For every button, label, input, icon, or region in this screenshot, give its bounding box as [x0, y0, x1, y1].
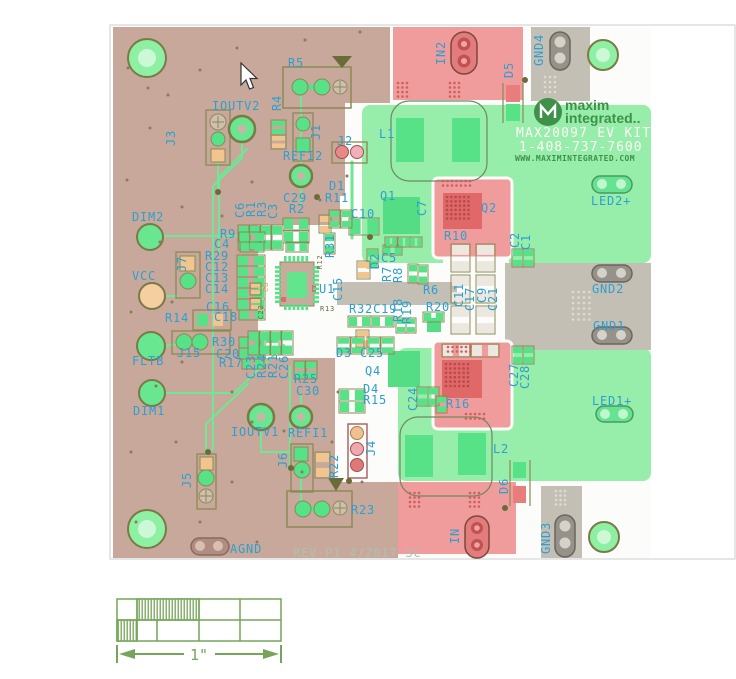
thermal-dot — [478, 417, 481, 420]
thermal-dot — [450, 196, 453, 199]
thermal-dot — [453, 82, 456, 85]
thermal-dot — [409, 496, 412, 499]
thermal-dot — [458, 385, 461, 388]
thermal-dot — [467, 380, 470, 383]
thermal-dot — [418, 496, 421, 499]
thermal-dot — [456, 346, 459, 349]
u1-pin — [275, 275, 281, 278]
thermal-dot — [406, 91, 409, 94]
thermal-dot — [463, 204, 466, 207]
thermal-dot — [445, 385, 448, 388]
thermal-dot — [544, 76, 547, 79]
thermal-dot — [401, 91, 404, 94]
thermal-dot — [465, 350, 468, 353]
thermal-dot — [459, 196, 462, 199]
thermal-dot — [445, 367, 448, 370]
label-C25: C25 — [360, 346, 384, 360]
thermal-dot — [469, 496, 472, 499]
thermal-dot — [474, 417, 477, 420]
label-D6: D6 — [497, 478, 511, 494]
via-dot — [251, 181, 254, 184]
label-C30: C30 — [296, 384, 320, 398]
thermal-dot — [450, 209, 453, 212]
thermal-dot — [467, 372, 470, 375]
label-IOUTV1: IOUTV1 — [231, 425, 279, 439]
label-D3: D3 — [336, 346, 352, 360]
via-dot — [301, 471, 304, 474]
thermal-dot — [454, 204, 457, 207]
thermal-dot — [450, 217, 453, 220]
u1-pin — [306, 304, 309, 310]
thermal-dot — [450, 204, 453, 207]
thermal-dot — [469, 492, 472, 495]
thermal-dot — [455, 180, 458, 183]
thermal-dot — [467, 367, 470, 370]
thermal-dot — [460, 180, 463, 183]
label-R8: R8 — [391, 267, 405, 283]
thermal-dot — [549, 91, 552, 94]
thermal-dot — [397, 86, 400, 89]
thermal-dot — [462, 372, 465, 375]
connector-in — [465, 516, 489, 558]
label-C24: C24 — [406, 387, 420, 411]
thermal-dot — [449, 363, 452, 366]
thermal-dot — [446, 180, 449, 183]
thermal-dot — [463, 213, 466, 216]
u1-pin — [288, 304, 291, 310]
label-VCC: VCC — [132, 269, 156, 283]
thermal-dot — [458, 380, 461, 383]
label-C14: C14 — [205, 282, 229, 296]
thermal-dot — [445, 372, 448, 375]
connector-in2 — [451, 32, 477, 74]
label-C8: C8 — [262, 282, 270, 292]
fet-q4 — [388, 351, 420, 387]
thermal-dot — [413, 505, 416, 508]
thermal-dot — [456, 350, 459, 353]
connector-gnd2 — [592, 265, 632, 282]
thermal-dot — [458, 91, 461, 94]
thermal-dot — [459, 204, 462, 207]
via-dot — [319, 199, 322, 202]
label-R11: R11 — [325, 191, 349, 205]
thermal-dot — [450, 213, 453, 216]
thermal-dot — [469, 505, 472, 508]
thermal-dot — [555, 494, 558, 497]
via-dot — [304, 39, 307, 42]
thermal-dot — [467, 209, 470, 212]
via-dot — [175, 441, 178, 444]
via-dot — [283, 430, 286, 433]
thermal-dot — [474, 413, 477, 416]
thermal-dot — [454, 372, 457, 375]
label-C5: C5 — [381, 251, 397, 265]
label-R19: R19 — [400, 300, 414, 324]
thermal-dot — [577, 318, 580, 321]
label-REFI1: REFI1 — [288, 426, 328, 440]
thermal-dot — [446, 184, 449, 187]
via-dot — [522, 77, 528, 83]
label-Q4: Q4 — [365, 364, 381, 378]
label-L1: L1 — [379, 127, 395, 141]
thermal-dot — [453, 91, 456, 94]
label-R14: R14 — [165, 311, 189, 325]
thermal-dot — [460, 350, 463, 353]
pad-dim2 — [137, 224, 163, 250]
u1-pin — [313, 275, 319, 278]
via-dot — [231, 391, 234, 394]
pad-refi1 — [290, 406, 312, 428]
thermal-dot — [588, 313, 591, 316]
label-IN2: IN2 — [434, 41, 448, 65]
thermal-dot — [462, 376, 465, 379]
pad-vcc — [139, 283, 165, 309]
thermal-dot — [564, 490, 567, 493]
via-dot — [171, 301, 174, 304]
thermal-dot — [454, 209, 457, 212]
thermal-dot — [458, 376, 461, 379]
via-dot — [231, 481, 234, 484]
thermal-dot — [583, 302, 586, 305]
thermal-dot — [467, 200, 470, 203]
thermal-dot — [583, 318, 586, 321]
fet-q3 — [442, 360, 482, 398]
thermal-dot — [564, 494, 567, 497]
label-C15: C15 — [331, 277, 345, 301]
thermal-dot — [554, 86, 557, 89]
u1-pin — [288, 256, 291, 262]
fet-q2 — [443, 193, 482, 229]
label-R23: R23 — [351, 503, 375, 517]
u1-pin — [275, 292, 281, 295]
thermal-dot — [588, 318, 591, 321]
thermal-dot — [572, 318, 575, 321]
via-dot — [181, 206, 184, 209]
u1-pin — [275, 266, 281, 269]
u1-pin — [313, 296, 319, 299]
thermal-dot — [449, 82, 452, 85]
thermal-dot — [449, 91, 452, 94]
via-dot — [199, 521, 202, 524]
thermal-dot — [467, 376, 470, 379]
thermal-dot — [397, 95, 400, 98]
thermal-dot — [483, 417, 486, 420]
u1-pin — [293, 304, 296, 310]
thermal-dot — [554, 76, 557, 79]
thermal-dot — [469, 413, 472, 416]
via-dot — [236, 47, 239, 50]
thermal-dot — [454, 385, 457, 388]
label-R13: R13 — [320, 305, 335, 313]
thermal-dot — [559, 490, 562, 493]
label-R4: R4 — [270, 95, 284, 111]
thermal-dot — [572, 296, 575, 299]
thermal-dot — [446, 213, 449, 216]
thermal-dot — [462, 363, 465, 366]
thermal-dot — [447, 346, 450, 349]
connector-agnd — [191, 538, 229, 555]
via-dot — [130, 311, 133, 314]
thermal-dot — [473, 505, 476, 508]
u1-pin — [297, 256, 300, 262]
label-REFI2: REFI2 — [283, 149, 323, 163]
thermal-dot — [458, 82, 461, 85]
thermal-dot — [458, 86, 461, 89]
label-R2: R2 — [289, 202, 305, 216]
thermal-dot — [397, 91, 400, 94]
thermal-dot — [572, 302, 575, 305]
thermal-dot — [406, 82, 409, 85]
via-dot — [159, 241, 162, 244]
thermal-dot — [583, 307, 586, 310]
thermal-dot — [564, 503, 567, 506]
thermal-dot — [588, 291, 591, 294]
label-GND4: GND4 — [532, 34, 546, 66]
label-R6: R6 — [423, 283, 439, 297]
ic-u1 — [280, 262, 316, 306]
thermal-dot — [572, 291, 575, 294]
pad-ioutv2 — [229, 116, 255, 142]
thermal-dot — [458, 95, 461, 98]
thermal-dot — [559, 494, 562, 497]
label-C26: C26 — [277, 355, 291, 379]
thermal-dot — [462, 367, 465, 370]
label-C28: C28 — [518, 365, 532, 389]
label-J15: J15 — [177, 346, 201, 360]
thermal-dot — [465, 346, 468, 349]
via-dot — [331, 441, 334, 444]
thermal-dot — [473, 496, 476, 499]
thermal-dot — [577, 302, 580, 305]
via-dot — [221, 215, 224, 218]
thermal-dot — [478, 505, 481, 508]
label-C21: C21 — [486, 287, 500, 311]
thermal-dot — [462, 385, 465, 388]
via-dot — [359, 31, 362, 34]
label-DIM1: DIM1 — [133, 404, 165, 418]
thermal-dot — [449, 372, 452, 375]
label-J7: J7 — [175, 256, 189, 272]
label-R12: R12 — [316, 254, 324, 269]
thermal-dot — [449, 380, 452, 383]
label-C18: C18 — [214, 310, 238, 324]
thermal-dot — [406, 95, 409, 98]
u1-pin — [313, 270, 319, 273]
thermal-dot — [451, 350, 454, 353]
thermal-dot — [473, 501, 476, 504]
thermal-dot — [406, 86, 409, 89]
thermal-dot — [409, 501, 412, 504]
u1-pin — [284, 256, 287, 262]
u1-pin — [275, 283, 281, 286]
scale-label: 1" — [190, 646, 208, 664]
via-dot — [502, 505, 508, 511]
thermal-dot — [397, 82, 400, 85]
thermal-dot — [459, 200, 462, 203]
via-dot — [127, 67, 130, 70]
thermal-dot — [588, 296, 591, 299]
label-LED1+: LED1+ — [592, 394, 632, 408]
thermal-dot — [459, 209, 462, 212]
via-dot — [130, 451, 133, 454]
via-dot — [135, 521, 138, 524]
thermal-dot — [459, 213, 462, 216]
thermal-dot — [446, 196, 449, 199]
via-dot — [155, 385, 158, 388]
thermal-dot — [467, 204, 470, 207]
thermal-dot — [446, 209, 449, 212]
u1-pin — [297, 304, 300, 310]
thermal-dot — [572, 313, 575, 316]
thermal-dot — [454, 196, 457, 199]
thermal-dot — [555, 490, 558, 493]
via-dot — [181, 361, 184, 364]
thermal-dot — [465, 413, 468, 416]
via-dot — [291, 181, 294, 184]
u1-pin — [301, 256, 304, 262]
thermal-dot — [459, 217, 462, 220]
thermal-dot — [454, 217, 457, 220]
website-text: WWW.MAXIMINTEGRATED.COM — [515, 154, 635, 163]
thermal-dot — [463, 196, 466, 199]
label-J2: J2 — [337, 134, 353, 148]
thermal-dot — [449, 86, 452, 89]
thermal-dot — [478, 492, 481, 495]
u1-pin — [275, 288, 281, 291]
via-dot — [167, 94, 170, 97]
thermal-dot — [446, 204, 449, 207]
u1-pin — [301, 304, 304, 310]
thermal-dot — [463, 217, 466, 220]
thermal-dot — [549, 86, 552, 89]
label-C7: C7 — [415, 200, 429, 216]
label-R5: R5 — [288, 56, 304, 70]
pcb-layout-screenshot: { "branding": { "kit_name": "MAX20097 EV… — [0, 0, 736, 679]
label-Q1: Q1 — [380, 189, 396, 203]
label-J3: J3 — [164, 130, 178, 146]
thermal-dot — [445, 363, 448, 366]
thermal-dot — [469, 180, 472, 183]
thermal-dot — [544, 86, 547, 89]
thermal-dot — [453, 95, 456, 98]
via-dot — [149, 127, 152, 130]
thermal-dot — [418, 492, 421, 495]
via-dot — [205, 449, 211, 455]
connector-gnd3 — [555, 515, 575, 557]
thermal-dot — [445, 376, 448, 379]
label-R16: R16 — [446, 397, 470, 411]
scale-bar: 1" — [117, 599, 281, 664]
thermal-dot — [454, 363, 457, 366]
scale-bar-hatch-bottom — [117, 620, 137, 641]
thermal-dot — [418, 501, 421, 504]
via-dot — [361, 481, 364, 484]
thermal-dot — [458, 363, 461, 366]
via-dot — [346, 175, 349, 178]
thermal-dot — [401, 82, 404, 85]
thermal-dot — [463, 200, 466, 203]
label-IOUTV2: IOUTV2 — [212, 99, 260, 113]
thermal-dot — [401, 86, 404, 89]
thermal-dot — [483, 413, 486, 416]
thermal-dot — [401, 95, 404, 98]
thermal-dot — [449, 385, 452, 388]
thermal-dot — [413, 501, 416, 504]
label-C10: C10 — [351, 207, 375, 221]
thermal-dot — [449, 95, 452, 98]
via-dot — [367, 234, 373, 240]
thermal-dot — [449, 367, 452, 370]
via-dot — [346, 478, 352, 484]
thermal-dot — [462, 380, 465, 383]
thermal-dot — [454, 200, 457, 203]
thermal-dot — [409, 505, 412, 508]
thermal-dot — [564, 499, 567, 502]
label-AGND: AGND — [230, 542, 262, 556]
label-C1: C1 — [519, 234, 533, 250]
thermal-dot — [463, 209, 466, 212]
label-DIM2: DIM2 — [132, 210, 164, 224]
thermal-dot — [467, 363, 470, 366]
thermal-dot — [473, 492, 476, 495]
u1-pin — [293, 256, 296, 262]
rev-note-text: REV-P1 4/2017 SC — [293, 546, 421, 560]
thermal-dot — [447, 350, 450, 353]
u1-pin — [275, 270, 281, 273]
connector-led2 — [592, 176, 632, 193]
via-dot — [126, 179, 129, 182]
thermal-dot — [572, 307, 575, 310]
connector-gnd4 — [550, 32, 570, 70]
via-dot — [215, 189, 221, 195]
label-GND3: GND3 — [539, 522, 553, 554]
thermal-dot — [478, 496, 481, 499]
thermal-dot — [418, 505, 421, 508]
thermal-dot — [446, 217, 449, 220]
label-D5: D5 — [502, 62, 516, 78]
label-R17: R17 — [219, 356, 243, 370]
label-R15: R15 — [363, 393, 387, 407]
label-J6: J6 — [276, 452, 290, 468]
label-LED2+: LED2+ — [591, 194, 631, 208]
thermal-dot — [467, 213, 470, 216]
pad-dim1 — [139, 380, 165, 406]
thermal-dot — [450, 200, 453, 203]
label-R32C19: R32C19 — [349, 302, 397, 316]
connector-led1 — [596, 406, 633, 422]
thermal-dot — [465, 417, 468, 420]
thermal-dot — [577, 296, 580, 299]
kit-name-text: MAX20097 EV KIT — [516, 126, 651, 141]
u1-pin — [306, 256, 309, 262]
thermal-dot — [469, 350, 472, 353]
thermal-dot — [469, 184, 472, 187]
thermal-dot — [467, 196, 470, 199]
label-C3: C3 — [266, 203, 280, 219]
brand-bottom-text: integrated.. — [565, 110, 640, 126]
thermal-dot — [554, 81, 557, 84]
u1-pin — [284, 304, 287, 310]
label-Q2: Q2 — [481, 201, 497, 215]
thermal-dot — [478, 501, 481, 504]
thermal-dot — [451, 184, 454, 187]
label-J4: J4 — [364, 440, 378, 456]
thermal-dot — [549, 81, 552, 84]
thermal-dot — [577, 313, 580, 316]
label-IN: IN — [448, 528, 462, 544]
thermal-dot — [577, 307, 580, 310]
thermal-dot — [453, 86, 456, 89]
